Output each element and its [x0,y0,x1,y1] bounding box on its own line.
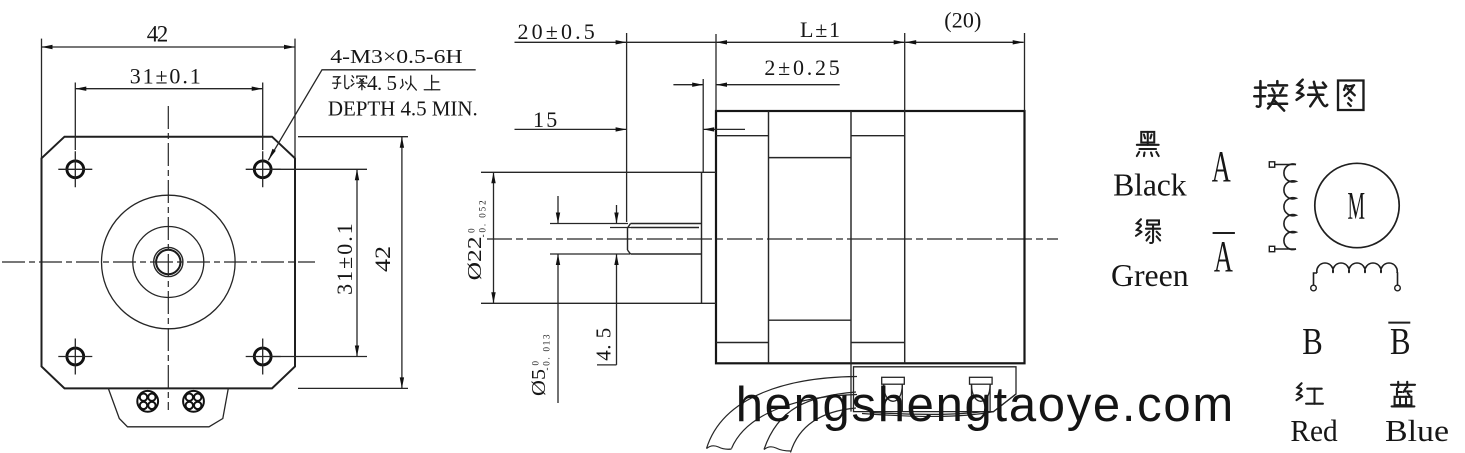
svg-text:(20): (20) [944,7,981,32]
svg-text:42: 42 [370,246,395,272]
svg-text:DEPTH 4.5 MIN.: DEPTH 4.5 MIN. [328,96,478,120]
svg-text:B: B [1390,321,1411,363]
svg-text:Ø22: Ø22 [464,236,486,280]
svg-text:B: B [1302,321,1323,363]
svg-text:Red: Red [1290,413,1338,448]
svg-text:4. 5: 4. 5 [592,328,616,361]
svg-text:4. 5: 4. 5 [367,71,397,95]
svg-text:0: 0 [467,228,477,233]
svg-text:Blue: Blue [1385,413,1449,448]
svg-text:31±0.1: 31±0.1 [130,63,201,88]
svg-text:0: 0 [531,361,541,366]
svg-text:A: A [1214,232,1233,281]
svg-text:31±0.1: 31±0.1 [332,223,357,295]
svg-text:-0. 013: -0. 013 [542,334,552,371]
svg-text:2±0.25: 2±0.25 [764,55,839,80]
svg-text:A: A [1212,142,1231,191]
svg-text:-0. 052: -0. 052 [478,200,488,237]
svg-text:Green: Green [1111,258,1189,293]
svg-text:M: M [1348,185,1366,228]
svg-text:Ø5: Ø5 [529,369,550,396]
svg-text:15: 15 [533,107,557,132]
svg-text:hengshengtaoye.com: hengshengtaoye.com [736,378,1235,432]
svg-text:L±1: L±1 [800,17,840,42]
svg-text:42: 42 [147,22,169,47]
svg-text:Black: Black [1113,168,1187,203]
svg-text:20±0.5: 20±0.5 [518,19,595,44]
svg-text:4-M3×0.5-6H: 4-M3×0.5-6H [330,46,462,68]
